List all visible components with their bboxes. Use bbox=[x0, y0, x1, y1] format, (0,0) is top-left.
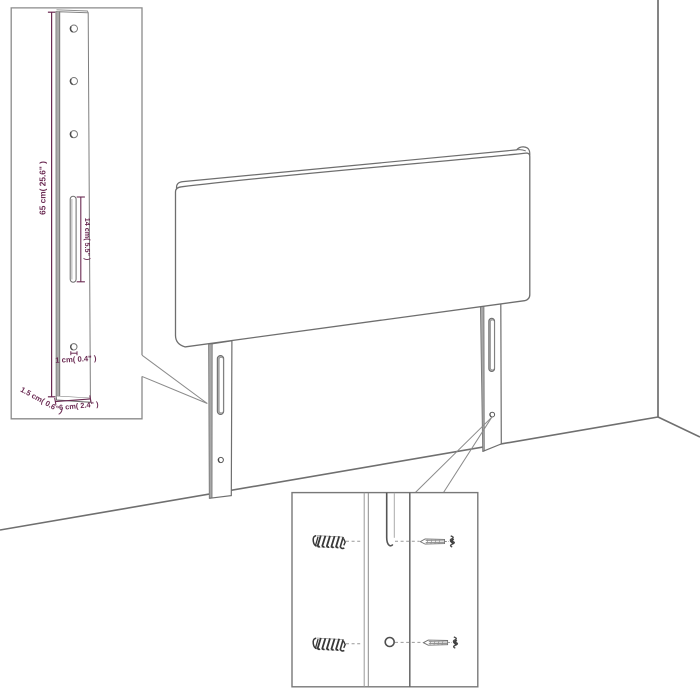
svg-text:65 cm( 25.6" ): 65 cm( 25.6" ) bbox=[38, 161, 48, 215]
svg-text:14 cm( 5.5" ): 14 cm( 5.5" ) bbox=[83, 218, 92, 261]
